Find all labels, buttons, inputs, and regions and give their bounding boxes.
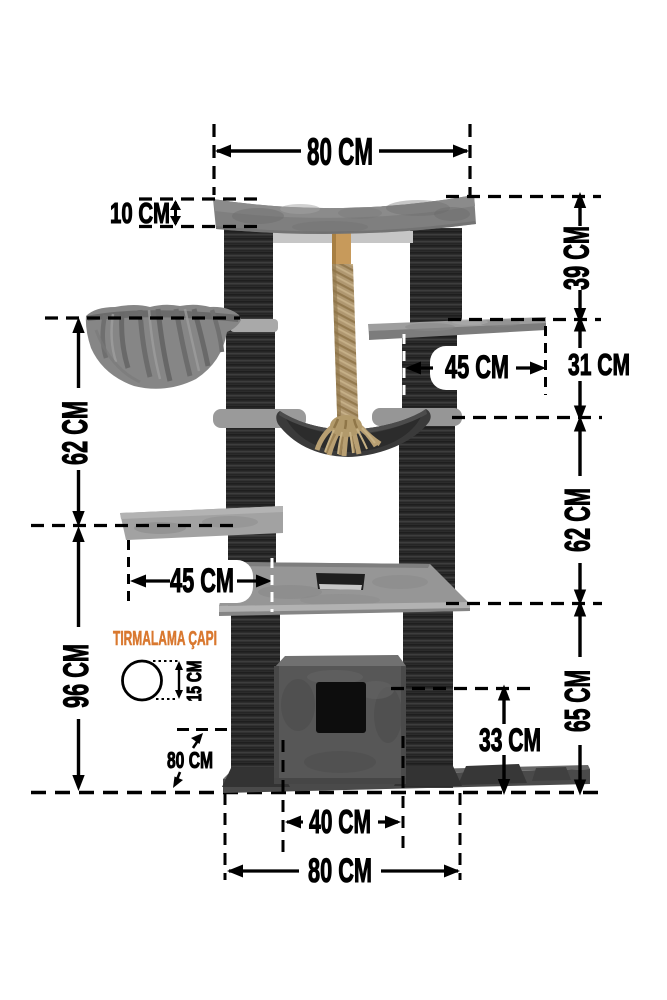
- svg-text:65 CM: 65 CM: [559, 670, 598, 732]
- svg-text:80 CM: 80 CM: [307, 132, 373, 174]
- svg-text:62 CM: 62 CM: [56, 401, 95, 465]
- svg-text:31 CM: 31 CM: [568, 347, 630, 382]
- svg-text:45 CM: 45 CM: [445, 349, 509, 385]
- svg-text:40 CM: 40 CM: [309, 803, 371, 840]
- svg-text:62 CM: 62 CM: [559, 488, 598, 552]
- svg-text:96 CM: 96 CM: [57, 644, 96, 708]
- svg-text:TIRMALAMA ÇAPI: TIRMALAMA ÇAPI: [113, 628, 217, 650]
- svg-text:80 CM: 80 CM: [308, 852, 372, 890]
- svg-text:15 CM: 15 CM: [184, 661, 206, 702]
- svg-text:10 CM: 10 CM: [110, 198, 170, 230]
- svg-text:80 CM: 80 CM: [167, 747, 213, 773]
- svg-text:45 CM: 45 CM: [170, 562, 234, 600]
- svg-text:33 CM: 33 CM: [479, 722, 541, 758]
- svg-text:39 CM: 39 CM: [558, 226, 597, 290]
